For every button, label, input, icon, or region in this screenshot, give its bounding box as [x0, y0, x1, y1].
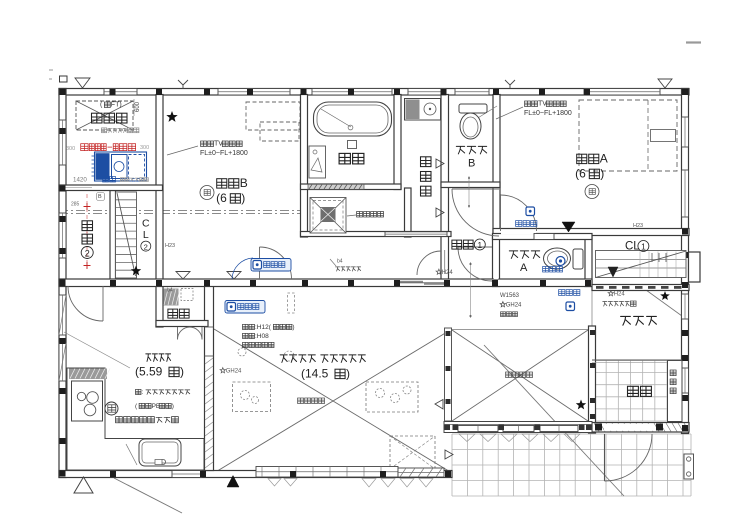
svg-text:2: 2	[85, 249, 90, 259]
svg-text:C: C	[142, 217, 150, 229]
svg-text:B: B	[240, 176, 248, 190]
svg-text:TV: TV	[214, 141, 223, 148]
svg-text:(6: (6	[216, 191, 227, 205]
svg-text:A: A	[520, 262, 528, 274]
svg-text:(5.59: (5.59	[135, 364, 163, 378]
svg-text:): )	[292, 324, 294, 331]
svg-text:GH24: GH24	[506, 302, 522, 308]
svg-text:1: 1	[477, 240, 482, 250]
svg-text:b4: b4	[167, 288, 173, 294]
svg-text:): )	[346, 366, 350, 380]
svg-text:600: 600	[135, 101, 141, 112]
svg-text:): )	[600, 166, 604, 180]
svg-text::H12(: :H12(	[255, 324, 272, 331]
svg-text:H24: H24	[614, 291, 626, 297]
svg-text:H23: H23	[633, 223, 643, 229]
svg-text:): )	[180, 364, 184, 378]
svg-text:B: B	[468, 158, 475, 170]
svg-text:): )	[241, 191, 245, 205]
svg-text:2: 2	[144, 242, 148, 251]
svg-text:H23: H23	[165, 243, 175, 249]
svg-text:(6: (6	[575, 166, 586, 180]
svg-text:b4: b4	[337, 259, 343, 265]
svg-text:300: 300	[66, 146, 75, 152]
svg-text:285: 285	[71, 202, 80, 208]
svg-text:TV: TV	[538, 101, 547, 108]
svg-text:GH24: GH24	[226, 368, 242, 374]
svg-text:1: 1	[641, 242, 646, 252]
svg-text::: :	[142, 389, 144, 396]
svg-text:B: B	[98, 194, 102, 200]
svg-text:): )	[172, 403, 174, 410]
svg-text::H08: :H08	[255, 333, 269, 340]
svg-text:FT): FT)	[111, 102, 122, 109]
svg-text:FL±0~FL+1800: FL±0~FL+1800	[200, 150, 248, 157]
svg-text:1420: 1420	[73, 177, 87, 184]
svg-text:(14.5: (14.5	[301, 366, 329, 380]
svg-text:H24: H24	[442, 270, 454, 276]
svg-text:300: 300	[140, 145, 149, 151]
svg-text:FL±0~FL+1800: FL±0~FL+1800	[524, 110, 572, 117]
svg-text:W1563: W1563	[500, 293, 520, 299]
svg-text:A: A	[600, 151, 608, 165]
svg-text:L: L	[143, 229, 149, 241]
